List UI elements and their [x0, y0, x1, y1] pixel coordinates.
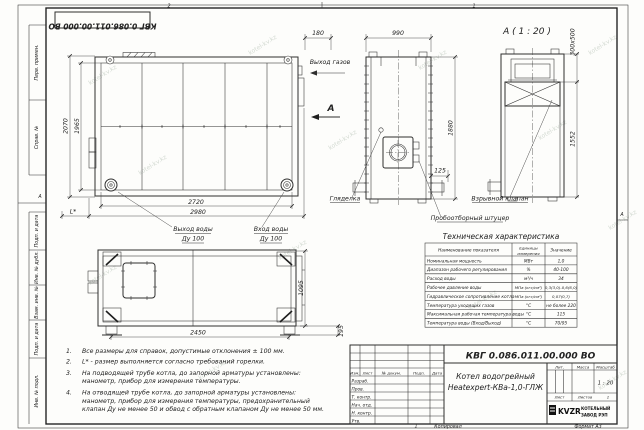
watermark-text: kotel-kv.kz	[417, 49, 448, 72]
water-inlet-label: Вход воды	[254, 226, 289, 233]
note-number: 1.	[66, 348, 72, 355]
spec-row-name: Максимальная рабочая температура воды	[427, 312, 525, 318]
spec-row-units: °С	[526, 312, 531, 318]
spec-row-name: Диапазон рабочего регулирования	[426, 267, 507, 273]
zone-number-top-1: 1	[472, 4, 475, 10]
title-block: Изм. Лист № докум. Подп. Дата Разраб. Пр…	[350, 345, 617, 424]
spec-row-value: не более 220	[546, 303, 576, 309]
gas-outlet-label: Выход газов	[310, 59, 351, 66]
dim-2450: 2450	[190, 330, 206, 337]
row-n-kontr: Н. контр.	[352, 410, 373, 416]
spec-row-units: °С	[526, 321, 531, 327]
spec-row-units: м³/ч	[524, 276, 533, 282]
margin-label-inv-podl: Инв. № подл.	[34, 374, 40, 407]
sheet-label: Лист	[554, 395, 566, 400]
dim-valve-size: 300х500	[570, 28, 577, 55]
note-text: Все размеры для справок, допустимые откл…	[82, 348, 285, 355]
zone-letter-right: А	[619, 212, 623, 218]
watermark-text: kotel-kv.kz	[87, 64, 118, 87]
margin-label-podp-data-2: Подп. и дата	[34, 323, 40, 356]
copied-label: Копировал	[434, 424, 461, 430]
dim-front-l-star: L*	[70, 209, 77, 216]
watermark-text: kotel-kv.kz	[587, 34, 618, 57]
dim-1552: 1552	[570, 131, 577, 147]
dim-front-height-inner: 1965	[74, 118, 81, 134]
spec-row-value: 40-100	[553, 267, 568, 273]
note-text: На отводящей трубе котла, до запорной ар…	[82, 389, 296, 397]
spec-table: Техническая характеристика Наименование …	[425, 232, 578, 327]
row-t-kontr: Т. контр.	[352, 394, 372, 400]
spec-row-units: МВт	[524, 258, 534, 264]
spec-row-name: Температура уходящих газов	[427, 303, 495, 309]
spec-row-name: Гидравлическое сопротивление котла	[427, 294, 515, 300]
zone-number-bottom: 1	[414, 424, 417, 430]
sheets-value: 1	[607, 395, 609, 400]
product-name-line2: Heatexpert-КВа-1,0-ГЛЖ	[448, 383, 544, 392]
explosion-valve-label: Взрывной клапан	[471, 196, 528, 203]
plan-view: 2450 1095 195	[88, 249, 345, 340]
dim-1880: 1880	[448, 120, 455, 136]
spec-row-value: 1,0	[558, 258, 565, 264]
spec-row-name: Номинальная мощность	[427, 258, 482, 264]
watermark-text: kotel-kv.kz	[247, 34, 278, 57]
row-prov: Пров.	[352, 386, 365, 392]
drawing-sheet: kotel-kv.kz kotel-kv.kz kotel-kv.kz kote…	[0, 0, 644, 430]
manhole	[123, 263, 155, 298]
watermark-text: kotel-kv.kz	[327, 129, 358, 152]
margin-label-inv-dubl: Инв. № дубл.	[34, 251, 40, 284]
sight-glass	[379, 128, 383, 132]
drawing-canvas: kotel-kv.kz kotel-kv.kz kotel-kv.kz kote…	[0, 0, 644, 430]
spec-col-units: измерения	[517, 251, 540, 256]
logo-text: KVZR	[558, 407, 581, 416]
note-text: L* - размер выполняется согласно требова…	[82, 358, 265, 366]
company-name-line1: КОТЕЛЬНЫЙ	[581, 406, 610, 411]
notes: 1. Все размеры для справок, допустимые о…	[66, 348, 324, 413]
spec-row-units: МПа (кгс/см²)	[515, 285, 543, 290]
spec-row-name: Рабочее давление воды	[427, 285, 482, 291]
section-view-letter: А	[327, 104, 335, 114]
col-podp: Подп.	[413, 371, 425, 376]
spec-row-value: 0,07(0,7)	[552, 294, 570, 299]
lit-label: Лит.	[554, 364, 564, 369]
dim-front-width-inner: 2720	[188, 199, 204, 206]
margin-label-podp-data-1: Подп. и дата	[34, 215, 40, 248]
sight-glass-label: Гляделка	[330, 196, 361, 203]
spec-row-value: 115	[557, 312, 565, 318]
sampling-port	[413, 142, 419, 149]
dim-1095: 1095	[298, 280, 305, 296]
spec-table-title: Техническая характеристика	[443, 232, 560, 241]
dim-990: 990	[392, 30, 404, 37]
sampling-port-label: Пробоотборный штуцер	[431, 214, 510, 222]
note-text: манометр, прибор для измерения температу…	[82, 377, 241, 385]
spec-row-value: 34	[558, 276, 564, 282]
water-inlet-dn: Ду 100	[259, 236, 282, 243]
col-docnum: № докум.	[381, 371, 401, 376]
product-name-line1: Котел водогрейный	[456, 372, 535, 381]
zone-number-top-2: 2	[167, 4, 170, 10]
spec-col-name: Наименование показателя	[438, 248, 499, 254]
side-view: 180 990 1880 125 Выход газов А Гляделка …	[303, 30, 509, 222]
doc-number: КВГ 0.086.011.00.000 ВО	[466, 352, 596, 362]
note-number: 2.	[66, 359, 72, 366]
spec-row-units: %	[526, 267, 530, 273]
margin-label-vzam-inv: Взам. инв. №	[34, 286, 40, 319]
spec-row-units: °С	[526, 303, 531, 309]
sheets-label: Листов	[577, 395, 593, 400]
spec-row-name: Расход воды	[427, 276, 456, 282]
spec-row-units: МПа (кгс/см²)	[515, 294, 543, 299]
kvzr-logo: KVZR	[549, 405, 581, 416]
row-razrab: Разраб.	[352, 378, 369, 384]
note-text: клапан Ду не менее 50 и обвод с обратным…	[82, 405, 324, 413]
col-list: Лист	[362, 371, 374, 376]
spec-col-value: Значение	[550, 248, 572, 254]
gas-flow-arrowhead-icon	[310, 70, 317, 75]
water-outlet-label: Выход воды	[173, 226, 213, 233]
dim-front-height-outer: 2070	[63, 118, 70, 134]
zone-letter-left: А	[37, 194, 41, 200]
row-utv: Утв.	[352, 418, 361, 424]
watermark-layer: kotel-kv.kz kotel-kv.kz kotel-kv.kz kote…	[87, 34, 638, 392]
spec-row-value: 0,3(3,0)-0,6(6,0)	[545, 285, 578, 290]
detail-view-title: А ( 1 : 20 )	[502, 27, 551, 37]
margin-label-sprav-no: Справ. №	[34, 126, 40, 149]
massa-label: Масса	[577, 364, 590, 369]
masshtab-label: Масштаб	[596, 364, 615, 369]
section-arrowhead-icon	[311, 114, 319, 120]
dim-front-width-outer: 2980	[190, 209, 206, 216]
format-label: Формат А3	[574, 424, 601, 430]
note-text: манометр, прибор для измерения температу…	[82, 397, 310, 405]
note-number: 4.	[66, 390, 72, 397]
dim-125: 125	[434, 168, 446, 175]
note-number: 3.	[66, 370, 72, 377]
col-izm: Изм.	[350, 371, 359, 376]
spec-row-value: 70/95	[555, 321, 568, 327]
note-text: На подводящей трубе котла, до запорной а…	[82, 369, 301, 377]
detail-view-a: А ( 1 : 20 ) 300х500 1552 Взрывной клапа…	[471, 27, 579, 203]
dim-180: 180	[312, 30, 324, 37]
col-data: Дата	[431, 371, 443, 376]
dim-195: 195	[338, 325, 345, 337]
water-outlet-dn: Ду 100	[181, 236, 204, 243]
margin-label-perv-primen: Перв. примен.	[34, 44, 40, 80]
row-nach-otd: Нач. отд.	[352, 402, 373, 408]
company-name-line2: ЗАВОД РЭП	[581, 413, 608, 418]
scale-value: 1 : 20	[598, 381, 614, 387]
spec-col-units: Единицы	[519, 246, 537, 251]
top-stamp-doc-number: КВГ 0.086.011.00.000 ВО	[48, 22, 157, 31]
spec-row-name: Температура воды (Вход/Выход)	[427, 321, 502, 327]
